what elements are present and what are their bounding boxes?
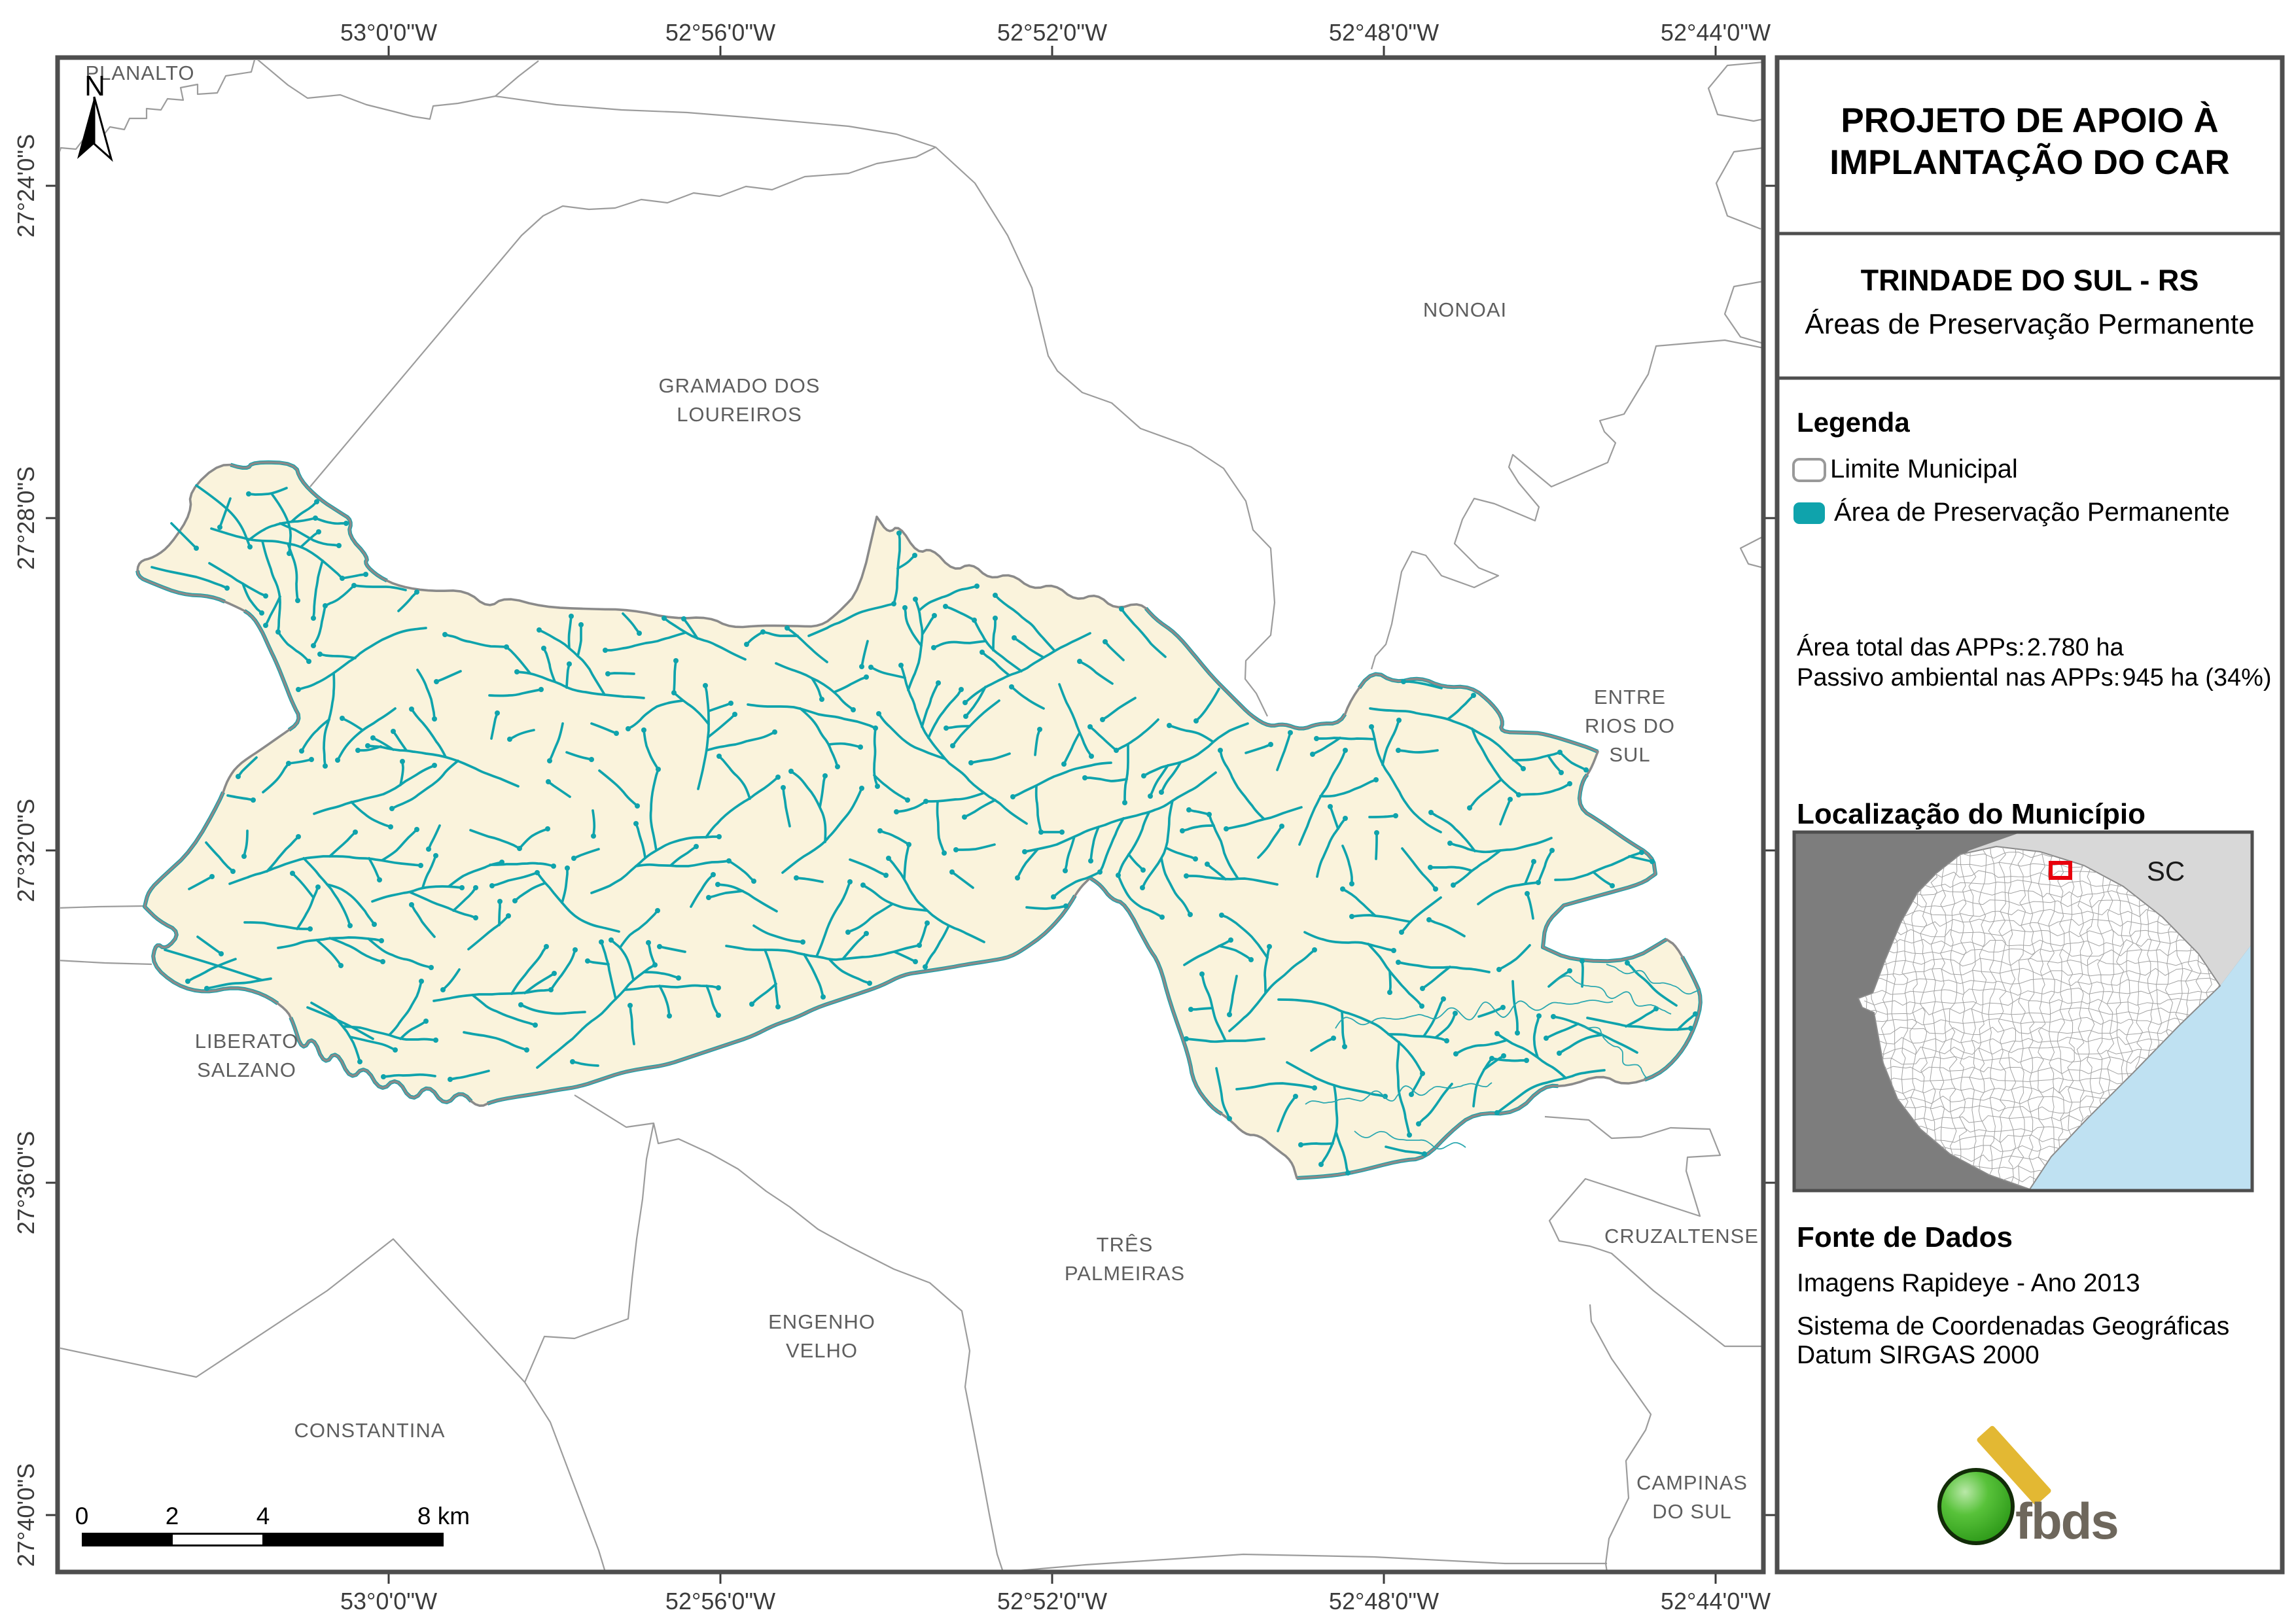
svg-text:53°0'0"W: 53°0'0"W (340, 19, 437, 46)
svg-text:CAMPINAS: CAMPINAS (1636, 1471, 1748, 1494)
svg-text:SUL: SUL (1609, 743, 1650, 766)
svg-text:4: 4 (256, 1503, 270, 1529)
svg-text:52°52'0"W: 52°52'0"W (997, 1588, 1107, 1614)
svg-text:Legenda: Legenda (1797, 407, 1910, 438)
svg-text:Área total das APPs: 2.780 ha: Área total das APPs: 2.780 ha (1797, 633, 2124, 661)
svg-text:DO SUL: DO SUL (1652, 1500, 1731, 1523)
svg-text:0: 0 (75, 1503, 89, 1529)
svg-text:TRÊS: TRÊS (1097, 1233, 1154, 1256)
svg-text:fbds: fbds (2015, 1492, 2118, 1550)
svg-text:Área de Preservação Permanente: Área de Preservação Permanente (1834, 497, 2230, 527)
svg-text:ENTRE: ENTRE (1594, 686, 1666, 708)
svg-text:TRINDADE DO SUL - RS: TRINDADE DO SUL - RS (1861, 264, 2199, 297)
svg-text:PROJETO DE APOIO À: PROJETO DE APOIO À (1841, 101, 2218, 140)
svg-text:52°56'0"W: 52°56'0"W (665, 1588, 775, 1614)
svg-text:52°44'0"W: 52°44'0"W (1661, 19, 1771, 46)
svg-text:GRAMADO DOS: GRAMADO DOS (659, 374, 821, 397)
svg-text:PALMEIRAS: PALMEIRAS (1065, 1262, 1185, 1285)
svg-text:8 km: 8 km (417, 1503, 470, 1529)
svg-text:27°24'0"S: 27°24'0"S (12, 134, 39, 237)
svg-text:LOUREIROS: LOUREIROS (677, 403, 802, 426)
svg-text:52°48'0"W: 52°48'0"W (1329, 1588, 1439, 1614)
svg-text:27°28'0"S: 27°28'0"S (12, 466, 39, 570)
svg-text:CONSTANTINA: CONSTANTINA (294, 1419, 446, 1442)
svg-text:NONOAI: NONOAI (1423, 298, 1507, 321)
svg-text:Áreas de Preservação Permanent: Áreas de Preservação Permanente (1805, 308, 2254, 340)
svg-text:IMPLANTAÇÃO DO CAR: IMPLANTAÇÃO DO CAR (1829, 143, 2229, 182)
svg-text:27°36'0"S: 27°36'0"S (12, 1131, 39, 1234)
svg-text:Fonte de Dados: Fonte de Dados (1797, 1221, 2013, 1253)
svg-text:Passivo ambiental nas APPs: 94: Passivo ambiental nas APPs: 945 ha (34%) (1797, 664, 2272, 691)
svg-text:RIOS DO: RIOS DO (1585, 714, 1675, 737)
svg-text:ENGENHO: ENGENHO (768, 1310, 875, 1333)
svg-text:Datum SIRGAS 2000: Datum SIRGAS 2000 (1797, 1341, 2040, 1369)
svg-text:LIBERATO: LIBERATO (195, 1030, 298, 1053)
svg-text:Imagens Rapideye - Ano 2013: Imagens Rapideye - Ano 2013 (1797, 1269, 2140, 1297)
svg-text:52°52'0"W: 52°52'0"W (997, 19, 1107, 46)
svg-text:SALZANO: SALZANO (197, 1058, 296, 1081)
svg-text:27°40'0"S: 27°40'0"S (12, 1463, 39, 1567)
svg-text:CRUZALTENSE: CRUZALTENSE (1604, 1225, 1759, 1248)
svg-text:52°44'0"W: 52°44'0"W (1661, 1588, 1771, 1614)
svg-text:53°0'0"W: 53°0'0"W (340, 1588, 437, 1614)
svg-text:27°32'0"S: 27°32'0"S (12, 799, 39, 902)
svg-text:Sistema de Coordenadas Geográf: Sistema de Coordenadas Geográficas (1797, 1312, 2229, 1340)
svg-text:SC: SC (2147, 856, 2185, 886)
svg-text:52°48'0"W: 52°48'0"W (1329, 19, 1439, 46)
svg-text:52°56'0"W: 52°56'0"W (665, 19, 775, 46)
svg-text:VELHO: VELHO (786, 1339, 858, 1362)
svg-text:2: 2 (166, 1503, 179, 1529)
svg-text:Localização do Município: Localização do Município (1797, 798, 2146, 830)
svg-text:Limite Municipal: Limite Municipal (1830, 455, 2018, 483)
